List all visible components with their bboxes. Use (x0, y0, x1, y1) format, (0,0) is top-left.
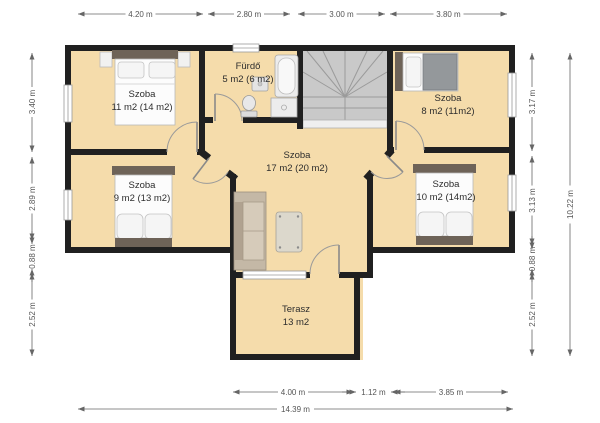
dim-bottom-2: 1.12 m (361, 388, 386, 397)
dim-bottom-total: 14.39 m (281, 405, 310, 414)
window-right-room10 (508, 175, 516, 211)
sofa (234, 192, 266, 270)
window-top-bathroom (233, 44, 259, 52)
dim-left-3: 0.88 m (28, 244, 37, 269)
stair-landing (303, 120, 387, 128)
dimensions-top: 4.20 m 2.80 m 3.00 m 3.80 m (78, 9, 507, 19)
dim-top-3: 3.00 m (329, 10, 354, 19)
bed-room9 (112, 166, 175, 247)
toilet (241, 96, 257, 118)
terrace-name-label: Terasz (282, 304, 310, 315)
hall-area-label: 17 m2 (20 m2) (266, 163, 328, 174)
dim-right-total: 10.22 m (566, 190, 575, 219)
room9-name-label: Szoba (129, 180, 157, 191)
nightstand (100, 52, 112, 67)
window-right-room8 (508, 73, 516, 117)
window-left-room9 (64, 190, 72, 220)
room8-area-label: 8 m2 (11m2) (421, 106, 474, 117)
shower (271, 98, 297, 117)
window-terrace-wall (243, 271, 306, 279)
dim-left-2: 2.89 m (28, 186, 37, 211)
room10-area-label: 10 m2 (14m2) (416, 192, 475, 203)
dim-bottom-3: 3.85 m (439, 388, 464, 397)
bathtub (275, 55, 298, 97)
bed-room10 (413, 164, 476, 245)
coffee-table (276, 212, 302, 252)
bed-room8 (395, 52, 458, 91)
room10-name-label: Szoba (433, 179, 461, 190)
hall-name-label: Szoba (284, 150, 312, 161)
window-left-room11 (64, 85, 72, 122)
bathroom-area-label: 5 m2 (6 m2) (222, 74, 273, 85)
bathroom-name-label: Fürdő (236, 61, 261, 72)
dimensions-left: 3.40 m 2.89 m 0.88 m 2.52 m (27, 53, 37, 356)
dim-right-1: 3.17 m (528, 89, 537, 114)
dim-left-1: 3.40 m (28, 89, 37, 114)
floor-plan-page: Szoba 11 m2 (14 m2) Fürdő 5 m2 (6 m2) Sz… (0, 0, 600, 423)
dimensions-right: 3.17 m 3.13 m 0.88 m 2.52 m 10.22 m (527, 53, 575, 356)
dim-right-4: 2.52 m (528, 302, 537, 327)
room11-area-label: 11 m2 (14 m2) (111, 102, 172, 113)
dimensions-bottom: 4.00 m 1.12 m 3.85 m 14.39 m (78, 387, 513, 414)
dim-right-2: 3.13 m (528, 188, 537, 213)
dim-top-1: 4.20 m (128, 10, 153, 19)
floor-plan: Szoba 11 m2 (14 m2) Fürdő 5 m2 (6 m2) Sz… (0, 0, 600, 423)
nightstand (178, 52, 190, 67)
room8-name-label: Szoba (435, 93, 463, 104)
staircase (303, 51, 387, 128)
room11-name-label: Szoba (129, 89, 157, 100)
terrace-area-label: 13 m2 (283, 317, 309, 328)
dim-left-4: 2.52 m (28, 302, 37, 327)
dim-right-3: 0.88 m (528, 246, 537, 271)
room9-area-label: 9 m2 (13 m2) (114, 193, 171, 204)
dim-top-4: 3.80 m (436, 10, 461, 19)
dim-bottom-1: 4.00 m (281, 388, 306, 397)
dim-top-2: 2.80 m (237, 10, 262, 19)
